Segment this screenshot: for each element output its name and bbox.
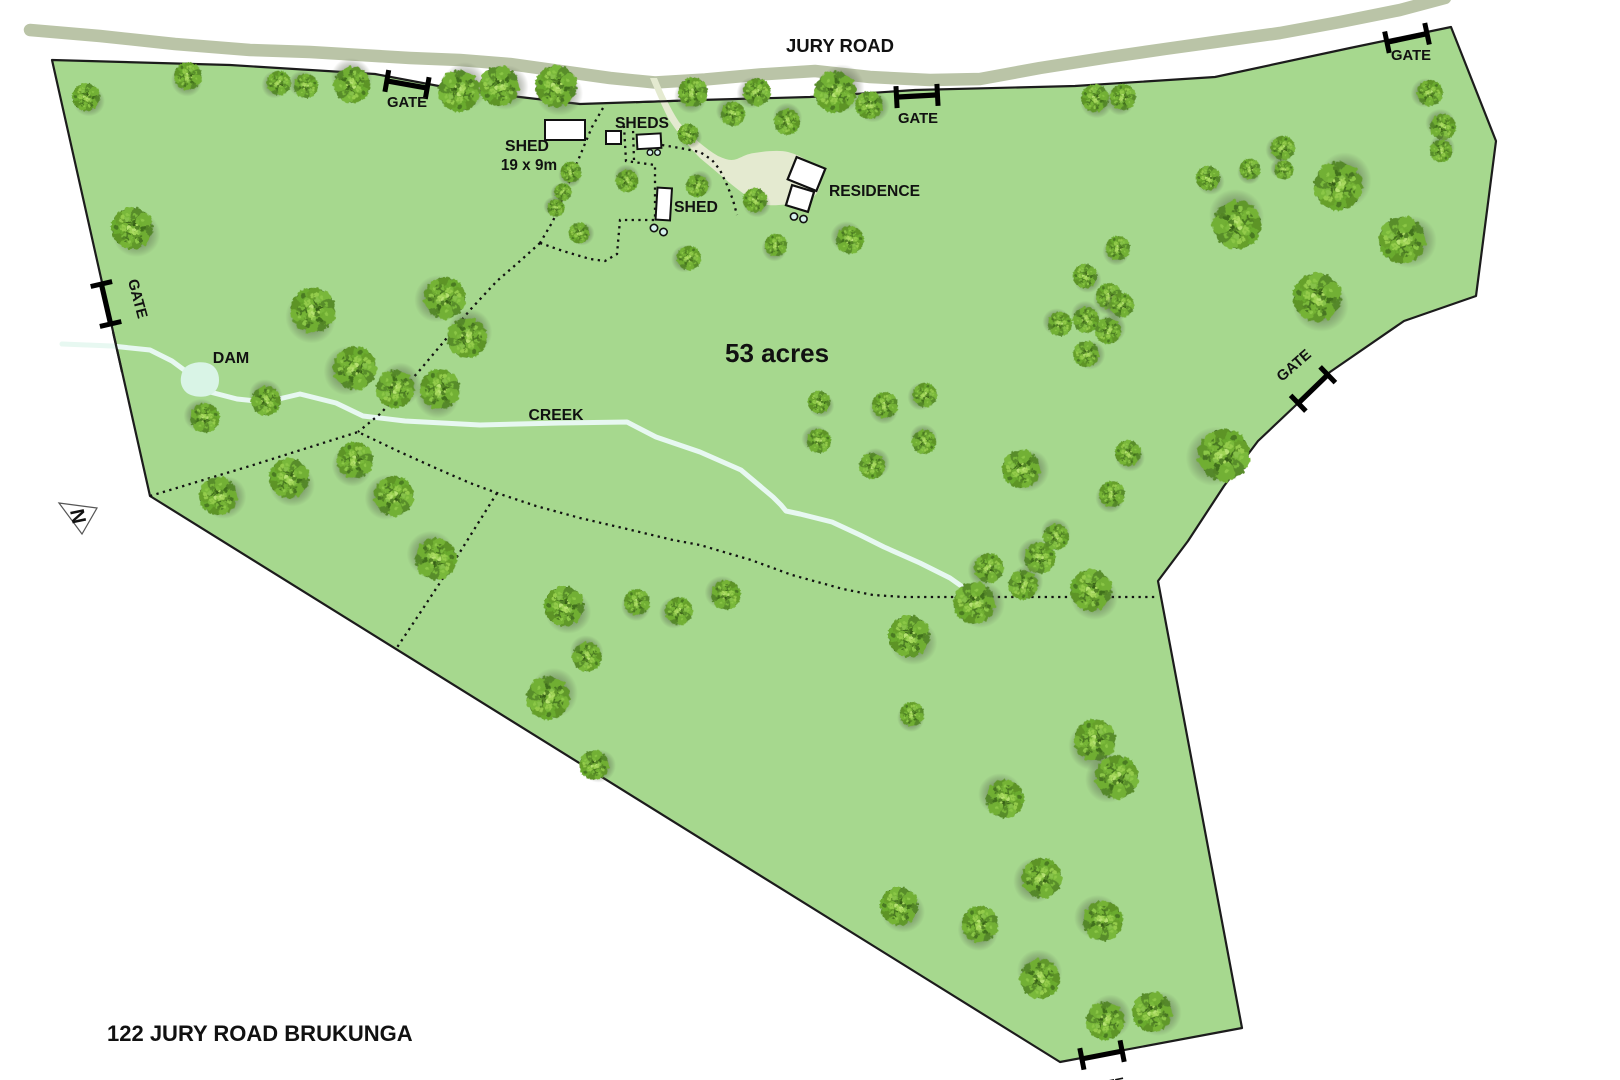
svg-text:GATE: GATE <box>1391 48 1431 64</box>
svg-text:SHED: SHED <box>674 199 718 216</box>
svg-text:DAM: DAM <box>213 350 249 367</box>
svg-text:RESIDENCE: RESIDENCE <box>829 183 920 200</box>
svg-text:19 x 9m: 19 x 9m <box>501 157 557 174</box>
svg-text:GATE: GATE <box>898 111 938 127</box>
svg-text:SHEDS: SHEDS <box>615 115 669 132</box>
svg-text:122 JURY ROAD BRUKUNGA: 122 JURY ROAD BRUKUNGA <box>107 1021 413 1046</box>
svg-text:GATE: GATE <box>387 95 427 111</box>
svg-text:CREEK: CREEK <box>529 407 585 424</box>
svg-text:SHED: SHED <box>505 138 549 155</box>
svg-text:JURY ROAD: JURY ROAD <box>786 35 894 56</box>
svg-text:53 acres: 53 acres <box>725 338 829 368</box>
